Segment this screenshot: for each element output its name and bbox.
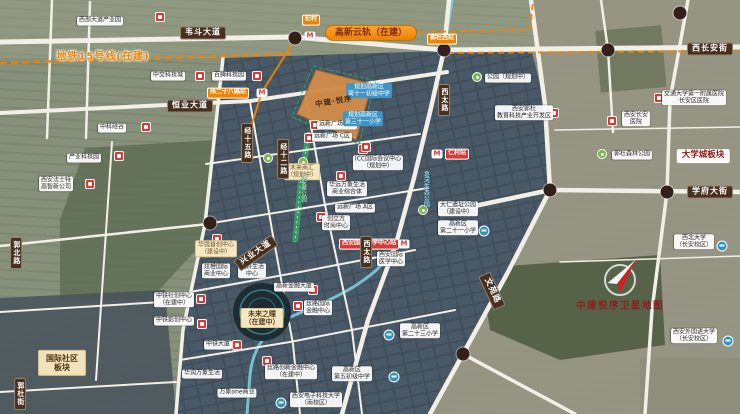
- road-label: 恒业大道: [167, 100, 213, 113]
- school-pin-icon: [479, 226, 490, 237]
- station-label: 仁村站: [445, 149, 469, 160]
- poi-pin-icon: [85, 179, 95, 189]
- metro-station-icon: M: [305, 32, 316, 41]
- poi-label: 西安郭杜教育科技产业开发区: [495, 105, 553, 120]
- poi-label: 高新金融大厦: [274, 283, 314, 292]
- road-label: 西长安街: [687, 43, 733, 56]
- poi-label: 华润万象生活: [182, 370, 222, 379]
- poi-label: ICC国际会议中心（规划中）: [353, 155, 403, 170]
- poi-label: 丝路国际金融中心: [304, 300, 332, 315]
- metro-station-icon: M: [257, 89, 268, 98]
- poi-label: 中交科技城: [151, 72, 185, 81]
- poi-label: 西部大道产业园: [77, 17, 123, 26]
- planned-poi-label: 华强首创中心（建设中）: [195, 240, 237, 257]
- river-label: 皂河生态公园: [422, 171, 429, 207]
- road-label: 学府大街: [687, 186, 733, 199]
- station-label: 郭杜西站: [427, 34, 457, 45]
- school-pin-icon: [276, 398, 287, 409]
- road-label: 郭杜街: [14, 378, 26, 410]
- station-label: 纬二十八路站: [207, 88, 249, 99]
- poi-label: 交通大学第一附属医院长安区医院: [662, 90, 726, 105]
- poi-pin-icon: [304, 133, 314, 143]
- road-junction-icon: [438, 44, 451, 57]
- poi-label: 公园（规划中）: [485, 74, 531, 83]
- poi-pin-icon: [252, 71, 262, 81]
- poi-pin-icon: [262, 356, 272, 366]
- poi-label: 西安国际医学中心: [377, 251, 405, 266]
- poi-label: 中铁影创中心: [154, 317, 194, 326]
- poi-pin-icon: [336, 171, 346, 181]
- park-pin-icon: [472, 72, 482, 82]
- station-label: 西安国际医学中心站: [339, 239, 399, 250]
- road-junction-icon: [289, 32, 302, 45]
- road-junction-icon: [661, 186, 674, 199]
- road-junction-icon: [674, 7, 687, 20]
- poi-pin-icon: [293, 301, 303, 311]
- road-label: 西太路: [438, 84, 450, 116]
- school-pin-icon: [384, 330, 395, 341]
- poi-label: 美好生活中心: [238, 263, 266, 278]
- poi-label: 高新区第五初级中学: [332, 366, 372, 381]
- planned-poi-label: 未来商汇（规划中）: [284, 163, 320, 180]
- poi-pin-icon: [196, 294, 206, 304]
- poi-pin-icon: [654, 93, 664, 103]
- poi-label: 万象one商业: [217, 389, 256, 398]
- poi-label: 创立方时尚中心: [322, 215, 350, 230]
- poi-label: 远新广场 A区: [335, 204, 375, 213]
- park-pin-icon: [298, 157, 308, 167]
- park-pin-icon: [597, 149, 607, 159]
- poi-label: 中铁大厦: [204, 341, 232, 350]
- road-junction-icon: [544, 184, 557, 197]
- poi-label: 华远万象生活商业综合体: [327, 181, 367, 196]
- road-label: 经十二路: [277, 139, 289, 179]
- poi-pin-icon: [197, 319, 207, 329]
- road-label: 文苑路: [478, 271, 505, 310]
- metro-station-icon: M: [432, 150, 443, 159]
- poi-label: 西安电子科技大学（南校区）: [290, 392, 342, 407]
- poi-label: 高新区第二十一小学: [438, 220, 478, 235]
- poi-pin-icon: [310, 120, 320, 130]
- poi-label: 丝路创新金融中心（在建中）: [265, 364, 317, 379]
- poi-label: 百腾科技园: [212, 72, 246, 81]
- poi-pin-icon: [141, 122, 151, 132]
- road-junction-icon: [602, 44, 615, 57]
- poi-pin-icon: [232, 340, 242, 350]
- poi-label: 郭杜森林公园: [612, 151, 652, 160]
- school-label: 规划高新区第十一初级中学: [346, 83, 392, 98]
- school-pin-icon: [389, 372, 400, 383]
- poi-label: 中铁社创中心（在建中）: [154, 292, 194, 307]
- poi-pin-icon: [155, 12, 165, 22]
- road-label: 西太路: [360, 236, 372, 268]
- school-pin-icon: [717, 241, 728, 252]
- satellite-map[interactable]: 西部大道产业园中交科技城百腾科技园中科硅谷产业科技园西安法士特高智新公司公园（规…: [0, 0, 740, 414]
- poi-pin-icon: [308, 285, 318, 295]
- poi-label: 炫橙国际商业中心: [202, 263, 230, 278]
- labels-layer: 西部大道产业园中交科技城百腾科技园中科硅谷产业科技园西安法士特高智新公司公园（规…: [0, 0, 740, 414]
- poi-label: 西安法士特高智新公司: [39, 176, 73, 191]
- poi-pin-icon: [361, 142, 371, 152]
- road-junction-icon: [204, 217, 217, 230]
- school-pin-icon: [723, 336, 734, 347]
- poi-pin-icon: [212, 234, 222, 244]
- park-pin-icon: [418, 205, 428, 215]
- road-label: 经十五路: [241, 123, 253, 163]
- poi-pin-icon: [195, 71, 205, 81]
- station-label: 纪村: [302, 15, 320, 26]
- poi-pin-icon: [549, 108, 559, 118]
- poi-label: 远新广场 B区: [317, 121, 357, 130]
- park-pin-icon: [263, 153, 273, 163]
- road-label: 韦斗大道: [180, 27, 226, 40]
- poi-pin-icon: [114, 151, 124, 161]
- poi-pin-icon: [316, 212, 326, 222]
- poi-label: 远新广场 C区: [312, 133, 352, 142]
- school-label: 规划高新区第三十一小学: [343, 111, 383, 126]
- road-junction-icon: [457, 348, 470, 361]
- poi-label: 西安长安医院: [622, 111, 650, 126]
- poi-pin-icon: [358, 144, 368, 154]
- road-label: 兴业大道: [233, 235, 278, 272]
- poi-label: 高新区第二十三小学: [400, 323, 440, 338]
- canal-label: 永安渠公园: [300, 174, 306, 202]
- poi-label: 中科硅谷: [98, 124, 126, 133]
- metro-station-icon: M: [399, 240, 410, 249]
- road-label: 郭北路: [10, 237, 22, 269]
- poi-label: 西北大学（长安校区）: [674, 234, 714, 249]
- poi-pin-icon: [607, 116, 617, 126]
- poi-label: 大仁遗址公园（建设中）: [438, 201, 478, 216]
- poi-label: 西安外国语大学（长安校区）: [671, 328, 717, 343]
- poi-label: 产业科技园: [67, 154, 101, 163]
